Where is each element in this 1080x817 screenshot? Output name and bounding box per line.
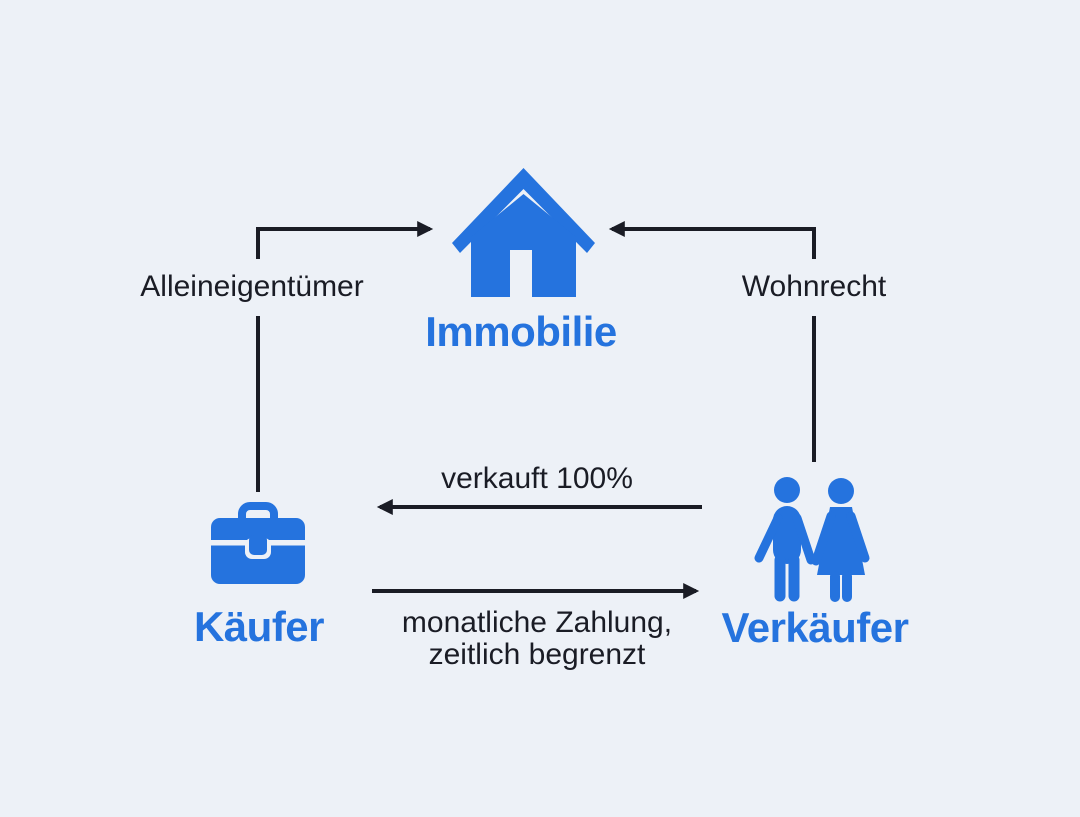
edge-label-monatliche-zahlung: monatliche Zahlung, zeitlich begrenzt	[402, 607, 672, 671]
edge-label-verkauft: verkauft 100%	[441, 463, 633, 495]
house-icon	[450, 166, 597, 298]
edge-label-monatliche-zahlung-line1: monatliche Zahlung,	[402, 607, 672, 639]
couple-icon	[752, 476, 874, 604]
edge-label-wohnrecht: Wohnrecht	[742, 271, 887, 303]
edge-label-alleineigentuemer: Alleineigentümer	[140, 271, 363, 303]
edge-seller-property-arrow	[612, 229, 814, 259]
property-node-label: Immobilie	[425, 308, 617, 356]
diagram-canvas: Immobilie Käufer Verkäufer Alleineigentü…	[0, 0, 1080, 817]
seller-node-label: Verkäufer	[722, 604, 909, 652]
briefcase-icon	[211, 502, 305, 584]
connector-layer	[0, 0, 1080, 817]
buyer-node-label: Käufer	[194, 603, 324, 651]
edge-label-monatliche-zahlung-line2: zeitlich begrenzt	[402, 639, 672, 671]
edge-buyer-property-arrow	[258, 229, 430, 259]
